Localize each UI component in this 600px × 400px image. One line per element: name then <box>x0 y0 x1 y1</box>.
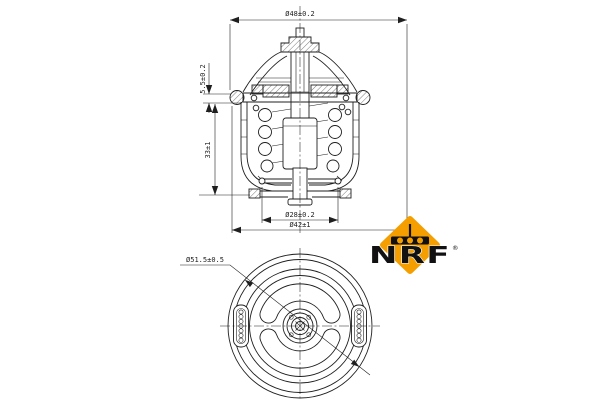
logo-registered-mark: ® <box>452 244 459 252</box>
dim-label-outer-diameter: Ø48±0.2 <box>285 10 315 18</box>
dim-label-overall-height: 33±1 <box>204 142 212 159</box>
dim-label-bypass-diameter: Ø28±0.2 <box>285 211 315 219</box>
flange-edge-right <box>356 91 370 105</box>
logo-text: NRF <box>369 243 451 269</box>
nrf-logo: NRF ® <box>369 219 459 271</box>
drawing-canvas: Ø48±0.2 5.5±0.2 33±1 Ø28±0.2 Ø42±1 <box>0 0 600 400</box>
dim-label-flange-diameter: Ø42±1 <box>289 221 310 229</box>
dim-label-flange-height: 5.5±0.2 <box>199 64 207 94</box>
flange-edge-left <box>230 91 244 105</box>
bottom-view: Ø51.5±0.5 <box>180 248 380 400</box>
side-view: Ø48±0.2 5.5±0.2 33±1 Ø28±0.2 Ø42±1 <box>199 6 407 233</box>
dimension-flange-diameter: Ø42±1 <box>232 106 407 233</box>
dim-label-bottom-diameter: Ø51.5±0.5 <box>186 256 224 264</box>
technical-drawing: Ø48±0.2 5.5±0.2 33±1 Ø28±0.2 Ø42±1 <box>0 0 600 400</box>
dimension-flange-height: 5.5±0.2 <box>199 63 241 113</box>
dimension-overall-height: 33±1 <box>199 104 250 195</box>
